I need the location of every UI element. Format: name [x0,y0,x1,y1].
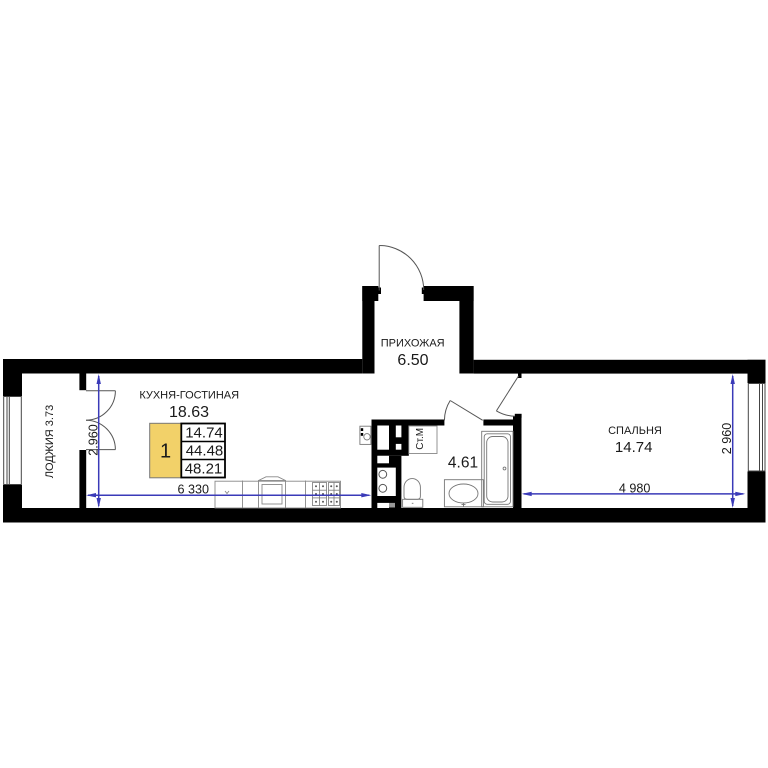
svg-text:4 980: 4 980 [619,481,651,495]
svg-text:48.21: 48.21 [185,460,223,477]
svg-text:6.50: 6.50 [397,352,428,369]
svg-text:ЛОДЖИЯ 3.73: ЛОДЖИЯ 3.73 [44,405,56,478]
svg-text:Ст.М: Ст.М [415,428,426,450]
svg-text:18.63: 18.63 [169,404,209,421]
svg-text:СПАЛЬНЯ: СПАЛЬНЯ [608,425,662,437]
svg-text:2 960: 2 960 [720,423,734,455]
svg-text:ПРИХОЖАЯ: ПРИХОЖАЯ [381,338,445,350]
svg-text:14.74: 14.74 [615,439,653,456]
svg-text:44.48: 44.48 [186,442,224,459]
svg-text:КУХНЯ-ГОСТИНАЯ: КУХНЯ-ГОСТИНАЯ [139,390,239,402]
svg-text:4.61: 4.61 [448,455,478,472]
svg-text:2.960: 2.960 [86,424,100,456]
svg-text:6 330: 6 330 [177,482,209,496]
svg-text:14.74: 14.74 [185,424,223,441]
svg-text:1: 1 [160,441,171,463]
